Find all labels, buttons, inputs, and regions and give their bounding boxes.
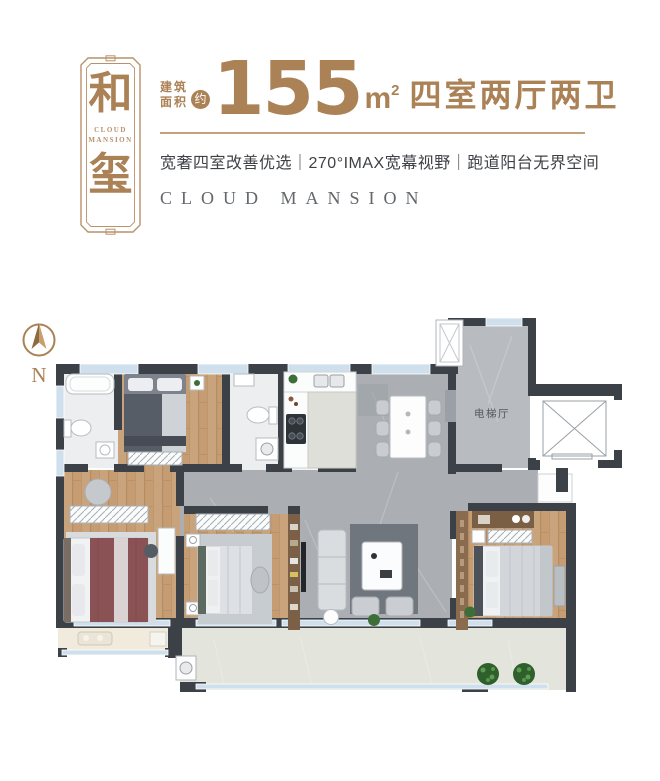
side-table — [324, 610, 339, 625]
toilet — [71, 420, 91, 436]
toilet-tank — [64, 420, 71, 437]
island — [308, 392, 356, 468]
lounge — [150, 632, 166, 646]
counter-plant — [289, 375, 298, 384]
wardrobe — [70, 506, 148, 523]
sink-basin — [314, 375, 328, 387]
tv — [301, 542, 306, 592]
brand-char-top: 和 — [89, 70, 133, 118]
balcony-plant — [513, 663, 535, 685]
armchair — [352, 597, 379, 616]
brand-english-title: CLOUD MANSION — [160, 188, 620, 209]
closet — [488, 530, 532, 543]
bench — [554, 566, 565, 606]
desk — [158, 528, 175, 574]
elevator-hall-label: 电梯厅 — [474, 407, 510, 420]
brand-char-bottom: 玺 — [89, 151, 133, 199]
tagline: 宽奢四室改善优选｜270°IMAX宽幕视野｜跑道阳台无界空间 — [160, 149, 620, 173]
dining-table — [390, 396, 426, 458]
corner-plant — [465, 607, 476, 618]
stove — [286, 414, 306, 444]
header-divider — [160, 132, 585, 134]
floor-plant — [368, 614, 380, 626]
stair-shaft — [436, 320, 463, 366]
sink — [234, 374, 254, 386]
area-label-top: 建筑 — [160, 80, 188, 95]
compass-north-label: N — [31, 363, 46, 387]
area-unit-sup: 2 — [391, 82, 399, 99]
dining-chair — [376, 400, 389, 415]
area-label: 建筑 面积 — [160, 80, 188, 110]
wardrobe — [128, 452, 182, 465]
area-unit: m2 — [364, 82, 399, 116]
header-main: 建筑 面积 约 155 m2 四室两厅两卫 宽奢四室改善优选｜270°IMAX宽… — [160, 60, 620, 209]
page: 和 CLOUD MANSION 玺 建筑 面积 约 155 m2 四室两厅两卫 — [0, 0, 660, 781]
area-unit-m: m — [364, 82, 391, 115]
balcony-plant — [477, 663, 499, 685]
runway-balcony-floor — [180, 628, 568, 690]
title-row: 建筑 面积 约 155 m2 四室两厅两卫 — [160, 60, 620, 119]
compass-icon: N — [24, 323, 55, 387]
coffee-table — [362, 542, 402, 590]
nightstand — [472, 530, 485, 543]
area-value: 155 — [213, 60, 361, 119]
area-label-bottom: 面积 — [160, 95, 188, 110]
approx-badge: 约 — [191, 90, 210, 109]
kitchen — [284, 372, 356, 468]
badge-subtitle-line1: CLOUD — [88, 125, 132, 135]
sofa — [318, 530, 346, 610]
nightstand — [186, 534, 200, 547]
elevator-shaft — [536, 396, 614, 460]
elevator-hall-floor — [454, 326, 530, 468]
left-balcony-glazing — [62, 650, 168, 655]
pouf — [251, 567, 269, 593]
desk-chair — [144, 544, 158, 558]
balcony-glazing — [196, 684, 548, 689]
badge-subtitle: CLOUD MANSION — [88, 125, 132, 145]
floor-plan: 电梯厅 N — [0, 300, 660, 781]
wardrobe — [196, 514, 270, 530]
entry-door — [445, 390, 456, 422]
room-spec: 四室两厅两卫 — [410, 70, 620, 116]
badge-subtitle-line2: MANSION — [88, 135, 132, 145]
sink — [96, 442, 114, 458]
round-chair — [85, 479, 111, 505]
brand-badge: 和 CLOUD MANSION 玺 — [78, 55, 143, 235]
toilet — [247, 407, 269, 423]
